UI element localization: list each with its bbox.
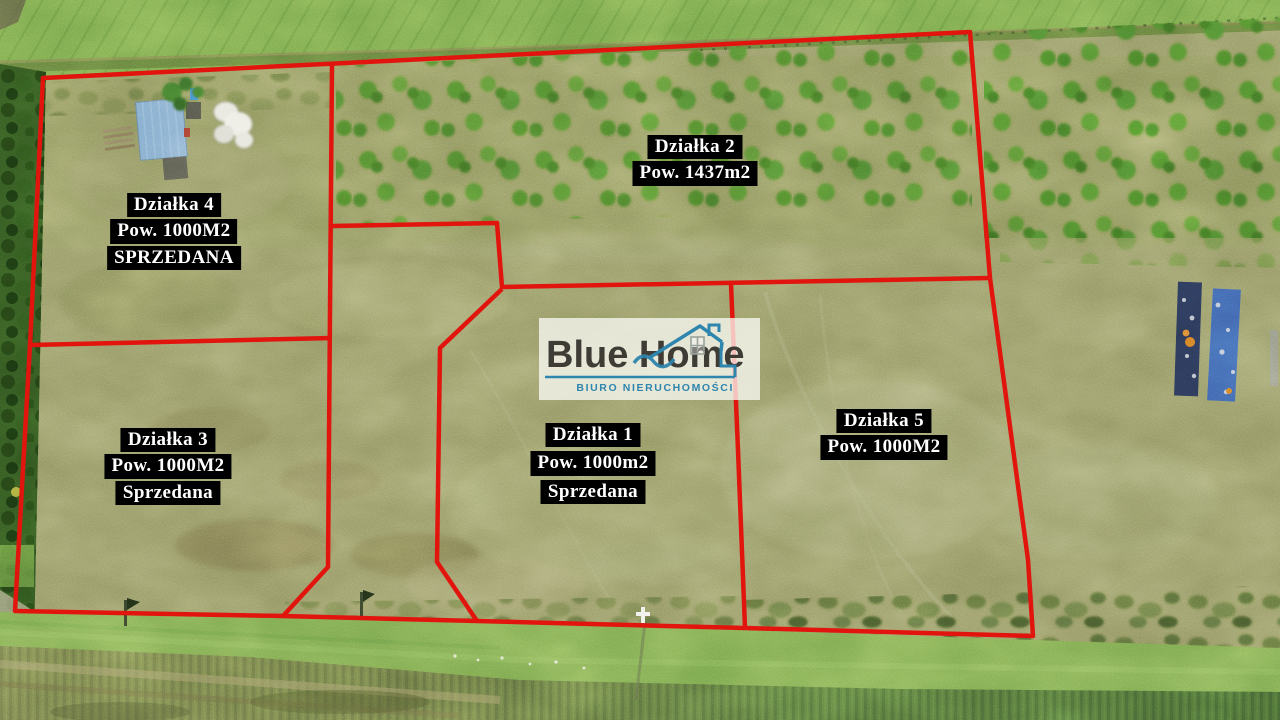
parcel-label-dzialka-4: Działka 4 Pow. 1000M2 SPRZEDANA bbox=[107, 193, 241, 270]
agency-subtitle: BIURO NIERUCHOMOŚCI bbox=[576, 382, 734, 394]
parcel-label-dzialka-2: Działka 2 Pow. 1437m2 bbox=[632, 135, 757, 186]
aerial-parcel-photo: Blue Home BIURO NIERUCHOMOŚCI Działka 2 … bbox=[0, 0, 1280, 720]
parcel-label-line: SPRZEDANA bbox=[107, 246, 241, 270]
parcel-label-dzialka-3: Działka 3 Pow. 1000M2 Sprzedana bbox=[104, 428, 231, 505]
parcel-label-line: Działka 3 bbox=[121, 428, 215, 452]
parcel-label-dzialka-1: Działka 1 Pow. 1000m2 Sprzedana bbox=[530, 423, 655, 504]
house-window bbox=[691, 337, 704, 354]
parcel-label-line: Działka 5 bbox=[837, 409, 931, 433]
parcel-label-line: Działka 1 bbox=[546, 423, 640, 447]
parcel-label-line: Pow. 1000m2 bbox=[530, 451, 655, 475]
wave-swoosh bbox=[634, 356, 674, 366]
parcel-label-line: Działka 2 bbox=[648, 135, 742, 159]
parcel-label-line: Działka 4 bbox=[127, 193, 221, 217]
parcel-label-line: Sprzedana bbox=[541, 480, 645, 504]
bluehome-watermark: Blue Home BIURO NIERUCHOMOŚCI bbox=[539, 318, 760, 400]
parcel-label-line: Pow. 1000M2 bbox=[104, 454, 231, 478]
parcel-label-dzialka-5: Działka 5 Pow. 1000M2 bbox=[820, 409, 947, 460]
parcel-label-line: Sprzedana bbox=[116, 481, 220, 505]
parcel-label-line: Pow. 1000M2 bbox=[820, 435, 947, 459]
parcel-label-line: Pow. 1437m2 bbox=[632, 161, 757, 185]
parcel-label-line: Pow. 1000M2 bbox=[110, 219, 237, 243]
